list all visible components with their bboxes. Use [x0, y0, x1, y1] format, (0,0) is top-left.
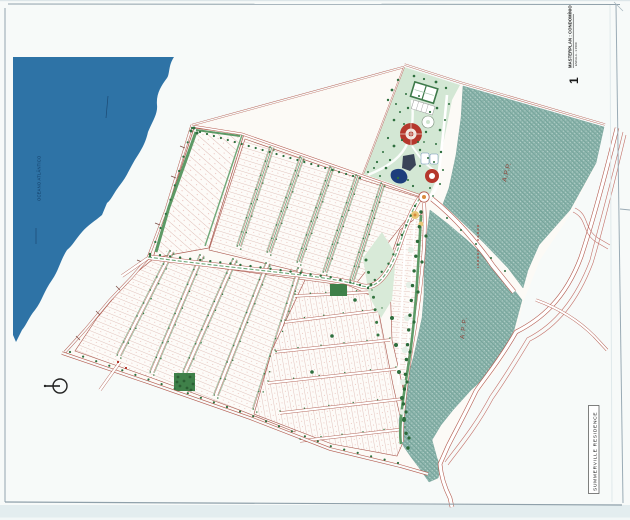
svg-text:1: 1: [567, 77, 581, 84]
svg-text:OCEANO ATLÂNTICO: OCEANO ATLÂNTICO: [37, 155, 42, 201]
svg-text:SUMMERVILLE RESIDENCE: SUMMERVILLE RESIDENCE: [593, 412, 599, 491]
svg-text:ESCALA - 1:1500: ESCALA - 1:1500: [574, 42, 578, 66]
svg-text:MASTERPLAN : CONDOMÍNIO: MASTERPLAN : CONDOMÍNIO: [568, 5, 573, 68]
